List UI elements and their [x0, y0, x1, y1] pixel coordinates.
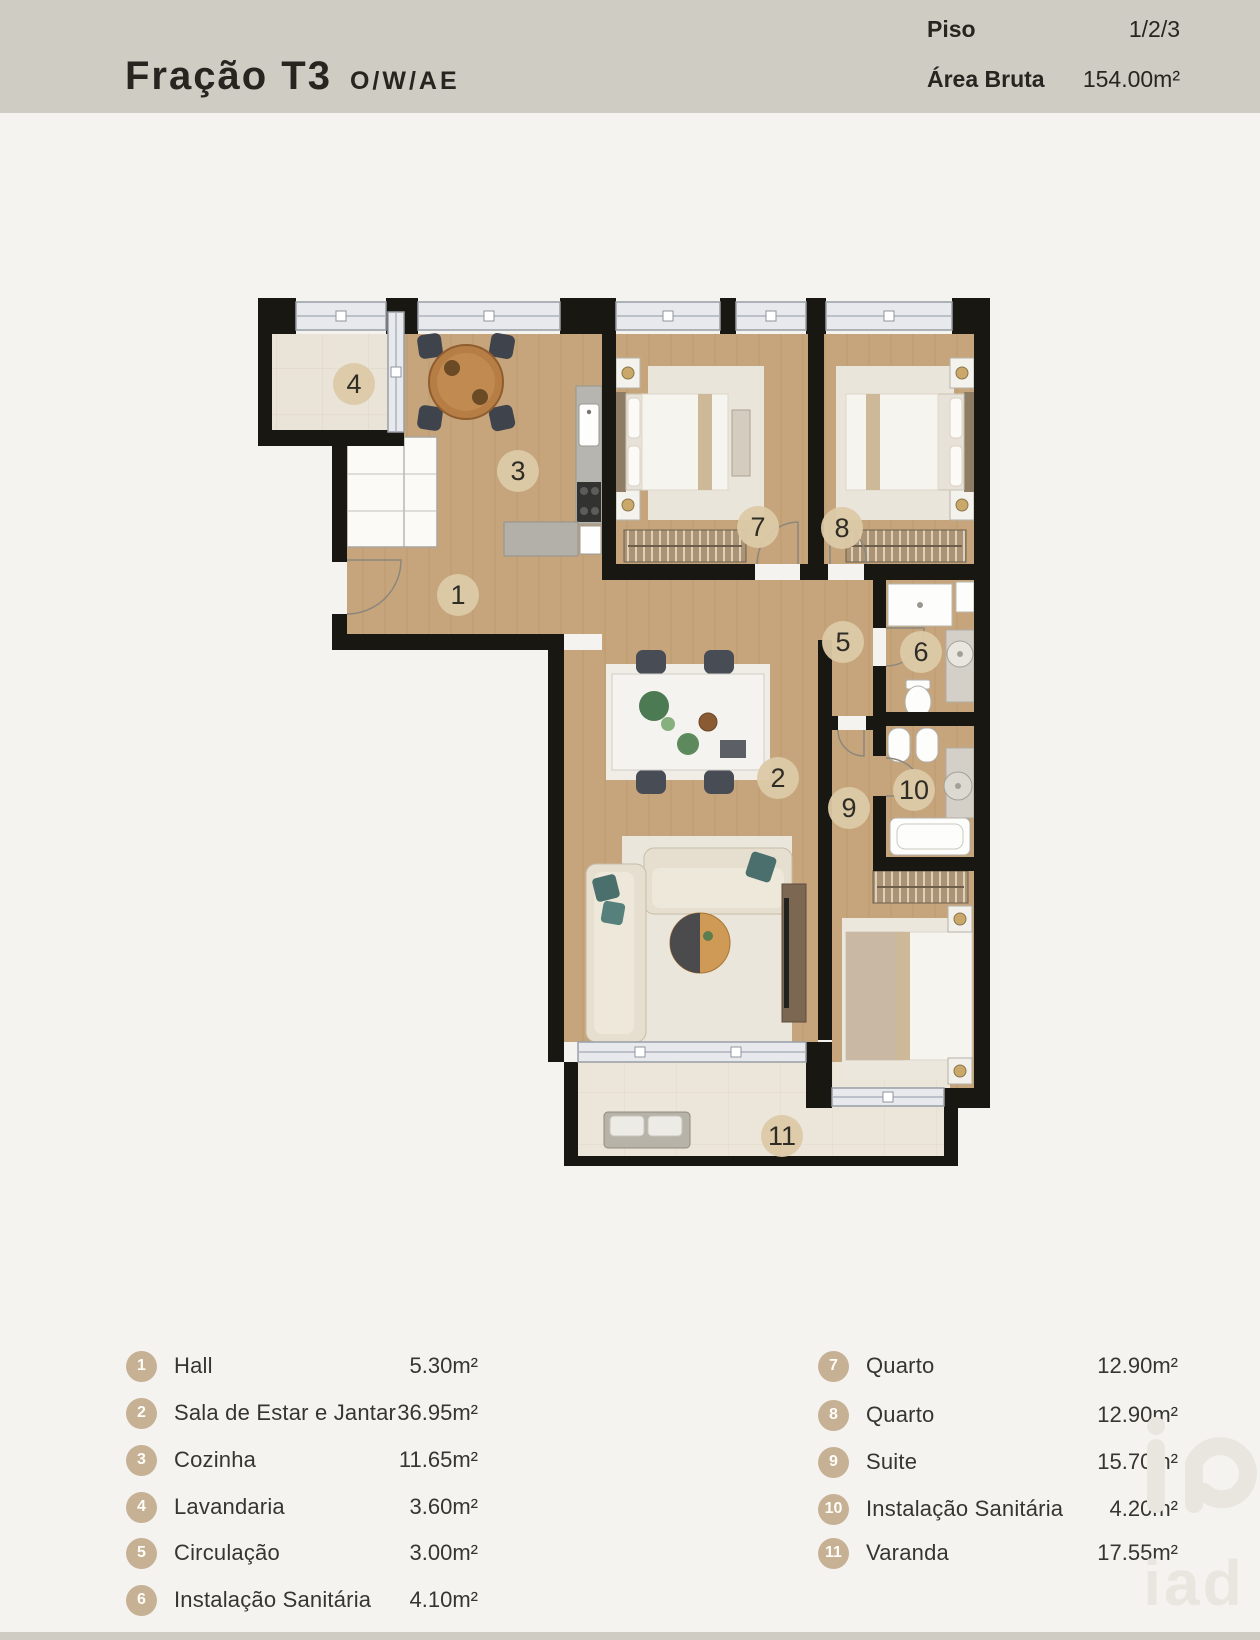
legend-room-name: Instalação Sanitária: [866, 1496, 1110, 1522]
legend-item: 2 Sala de Estar e Jantar 36.95m²: [126, 1396, 478, 1430]
legend-room-area: 3.00m²: [410, 1540, 478, 1566]
svg-text:7: 7: [750, 512, 765, 542]
legend-badge: 8: [818, 1400, 849, 1431]
legend-room-name: Quarto: [866, 1353, 1097, 1379]
room-badge-10: 10: [893, 769, 935, 811]
legend-badge: 3: [126, 1445, 157, 1476]
legend-badge: 1: [126, 1351, 157, 1382]
footer-bar: [0, 1632, 1260, 1640]
legend-badge: 7: [818, 1351, 849, 1382]
legend-room-name: Hall: [174, 1353, 410, 1379]
legend-room-name: Varanda: [866, 1540, 1097, 1566]
legend-item: 3 Cozinha 11.65m²: [126, 1443, 478, 1477]
svg-text:2: 2: [770, 763, 785, 793]
hall-closet: [347, 437, 437, 547]
room-badge-4: 4: [333, 363, 375, 405]
legend-room-name: Sala de Estar e Jantar: [174, 1400, 397, 1426]
legend-item: 6 Instalação Sanitária 4.10m²: [126, 1583, 478, 1617]
svg-text:6: 6: [913, 637, 928, 667]
legend-room-name: Suite: [866, 1449, 1097, 1475]
legend-item: 5 Circulação 3.00m²: [126, 1536, 478, 1570]
legend-room-area: 4.10m²: [410, 1587, 478, 1613]
bed-bench: [732, 410, 750, 476]
legend-item: 8 Quarto 12.90m²: [818, 1398, 1178, 1432]
svg-text:1: 1: [450, 580, 465, 610]
room-badge-7: 7: [737, 506, 779, 548]
legend-item: 9 Suite 15.70m²: [818, 1445, 1178, 1479]
room-badge-1: 1: [437, 574, 479, 616]
legend-badge: 6: [126, 1585, 157, 1616]
legend-item: 4 Lavandaria 3.60m²: [126, 1490, 478, 1524]
balcony-sofa: [604, 1112, 690, 1148]
legend-room-name: Instalação Sanitária: [174, 1587, 410, 1613]
dishwasher: [580, 526, 601, 554]
legend-room-name: Lavandaria: [174, 1494, 410, 1520]
legend-room-area: 36.95m²: [397, 1400, 478, 1426]
legend-room-area: 5.30m²: [410, 1353, 478, 1379]
legend-item: 11 Varanda 17.55m²: [818, 1536, 1178, 1570]
legend-badge: 4: [126, 1492, 157, 1523]
legend-room-name: Cozinha: [174, 1447, 399, 1473]
legend-room-name: Quarto: [866, 1402, 1097, 1428]
svg-text:10: 10: [899, 775, 929, 805]
svg-text:9: 9: [841, 793, 856, 823]
svg-text:11: 11: [768, 1121, 796, 1151]
legend-badge: 10: [818, 1494, 849, 1525]
washbasin: [916, 728, 938, 762]
room-badge-5: 5: [822, 621, 864, 663]
legend-badge: 2: [126, 1398, 157, 1429]
legend-badge: 9: [818, 1447, 849, 1478]
legend-room-name: Circulação: [174, 1540, 410, 1566]
svg-text:8: 8: [834, 513, 849, 543]
page: Fração T3 O/W/AE Piso 1/2/3 Área Bruta 1…: [0, 0, 1260, 1640]
kitchen-dining-table: [416, 332, 516, 432]
legend-item: 7 Quarto 12.90m²: [818, 1349, 1178, 1383]
legend-badge: 11: [818, 1538, 849, 1569]
floor-plan: 1 2 3 4 5 6 7 8 9 10 11: [0, 0, 1260, 1640]
floor-corridor: [602, 580, 832, 650]
room-badge-8: 8: [821, 507, 863, 549]
legend-room-area: 11.65m²: [399, 1447, 478, 1473]
svg-text:3: 3: [510, 456, 525, 486]
room-badge-11: 11: [761, 1115, 803, 1157]
legend-room-area: 15.70m²: [1097, 1449, 1178, 1475]
washbasin: [888, 728, 910, 762]
legend-badge: 5: [126, 1538, 157, 1569]
legend-room-area: 12.90m²: [1097, 1402, 1178, 1428]
room-badge-3: 3: [497, 450, 539, 492]
legend-item: 10 Instalação Sanitária 4.20m²: [818, 1492, 1178, 1526]
room-badge-2: 2: [757, 757, 799, 799]
legend-room-area: 4.20m²: [1110, 1496, 1178, 1522]
legend-item: 1 Hall 5.30m²: [126, 1349, 478, 1383]
kitchen-island: [504, 522, 578, 556]
svg-text:4: 4: [346, 369, 361, 399]
legend-room-area: 17.55m²: [1097, 1540, 1178, 1566]
legend-room-area: 3.60m²: [410, 1494, 478, 1520]
room-badge-9: 9: [828, 787, 870, 829]
legend-room-area: 12.90m²: [1097, 1353, 1178, 1379]
room-badge-6: 6: [900, 631, 942, 673]
tv: [784, 898, 789, 1008]
svg-text:5: 5: [835, 627, 850, 657]
